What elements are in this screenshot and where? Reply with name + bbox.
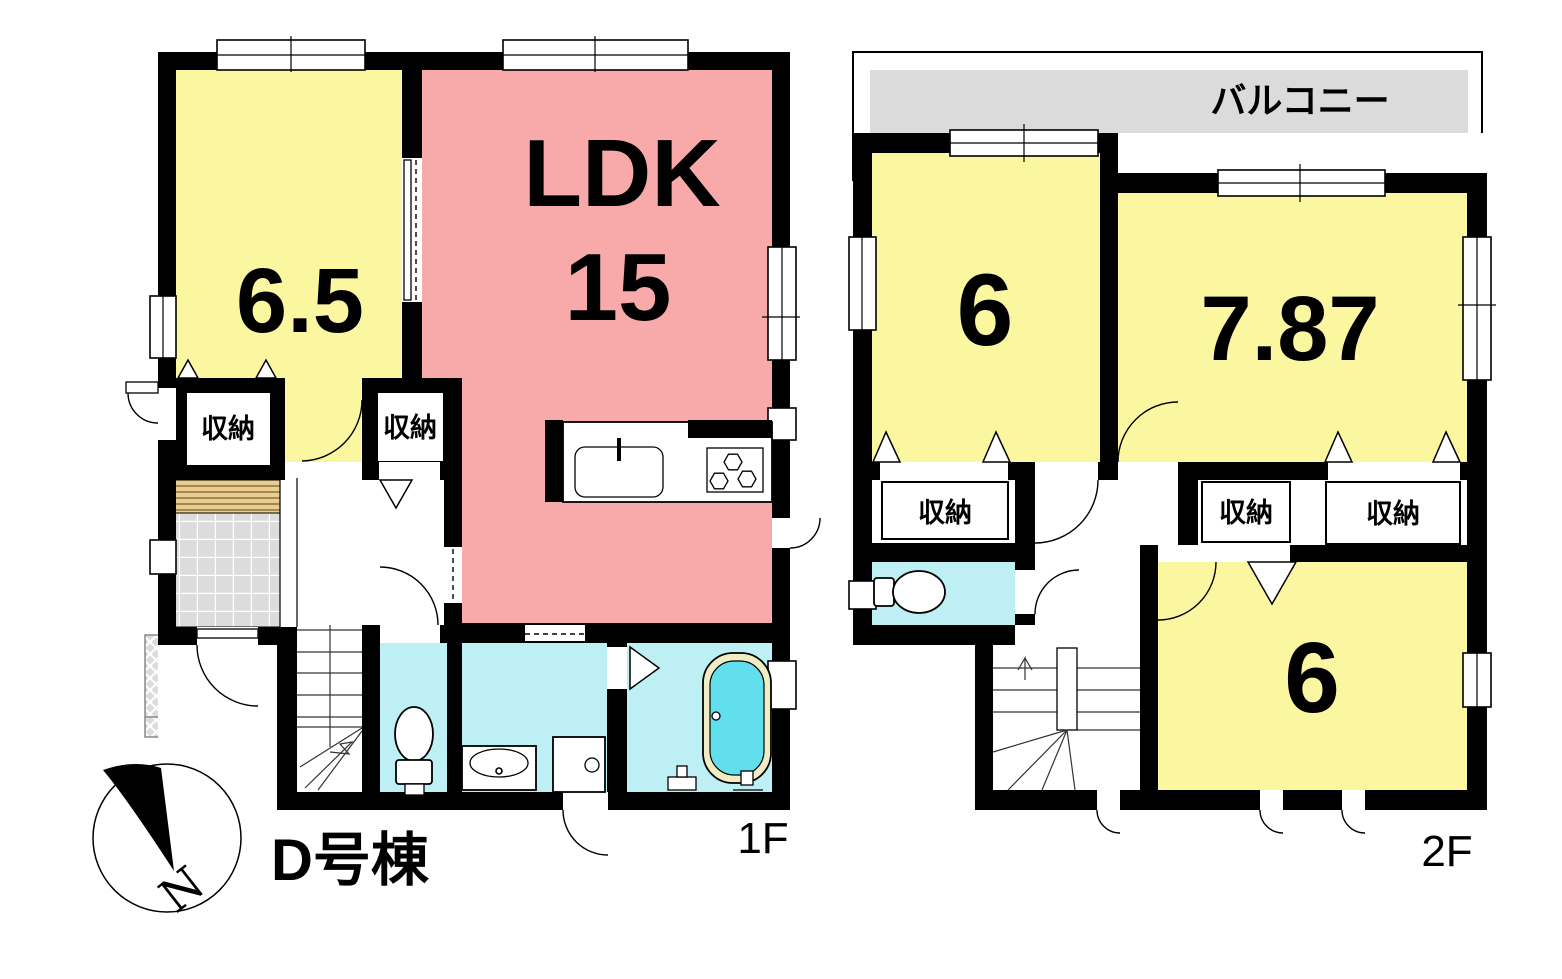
entry-step-tatami	[172, 480, 280, 513]
ldk-size-label: 15	[565, 234, 672, 341]
hall-ldk-opening	[444, 547, 462, 603]
building-name-label: D号棟	[271, 828, 430, 893]
kitchen-counter	[563, 420, 772, 502]
bedroom6-bottom-size-label: 6	[1284, 622, 1340, 734]
back-door	[563, 792, 608, 855]
sliding-door-bedroom-ldk	[402, 158, 422, 302]
floor-plan-canvas: 収納 収納	[0, 0, 1562, 979]
toilet1f-fixture	[395, 707, 433, 795]
bedroom787-size-label: 7.87	[1200, 278, 1379, 380]
storage-left-2f-label: 収納	[918, 497, 972, 528]
floor1-label: 1F	[737, 814, 788, 863]
floor2-label: 2F	[1421, 827, 1472, 876]
storage-left-1f-label: 収納	[201, 413, 255, 444]
entry-genkan-tile	[172, 513, 280, 627]
storage-right-2f-label: 収納	[1366, 498, 1420, 529]
washroom-sliding-door	[525, 625, 585, 641]
ldk-side-door	[772, 518, 820, 548]
toilet2f-fixture	[874, 571, 945, 613]
storage-hall-1f-label: 収納	[383, 412, 437, 443]
side-door-left	[126, 382, 176, 440]
bedroom6-top-size-label: 6	[957, 253, 1014, 367]
bathtub-fixture	[703, 653, 771, 790]
storage-middle-2f-label: 収納	[1219, 497, 1273, 528]
washing-machine-fixture	[553, 737, 605, 792]
floor2-plan: バルコニー	[849, 52, 1496, 833]
ldk-label: LDK	[523, 120, 720, 227]
washbasin-fixture	[462, 746, 536, 790]
bedroom65-size-label: 6.5	[236, 250, 364, 352]
compass: N	[93, 764, 241, 923]
balcony-label: バルコニー	[1210, 80, 1389, 121]
